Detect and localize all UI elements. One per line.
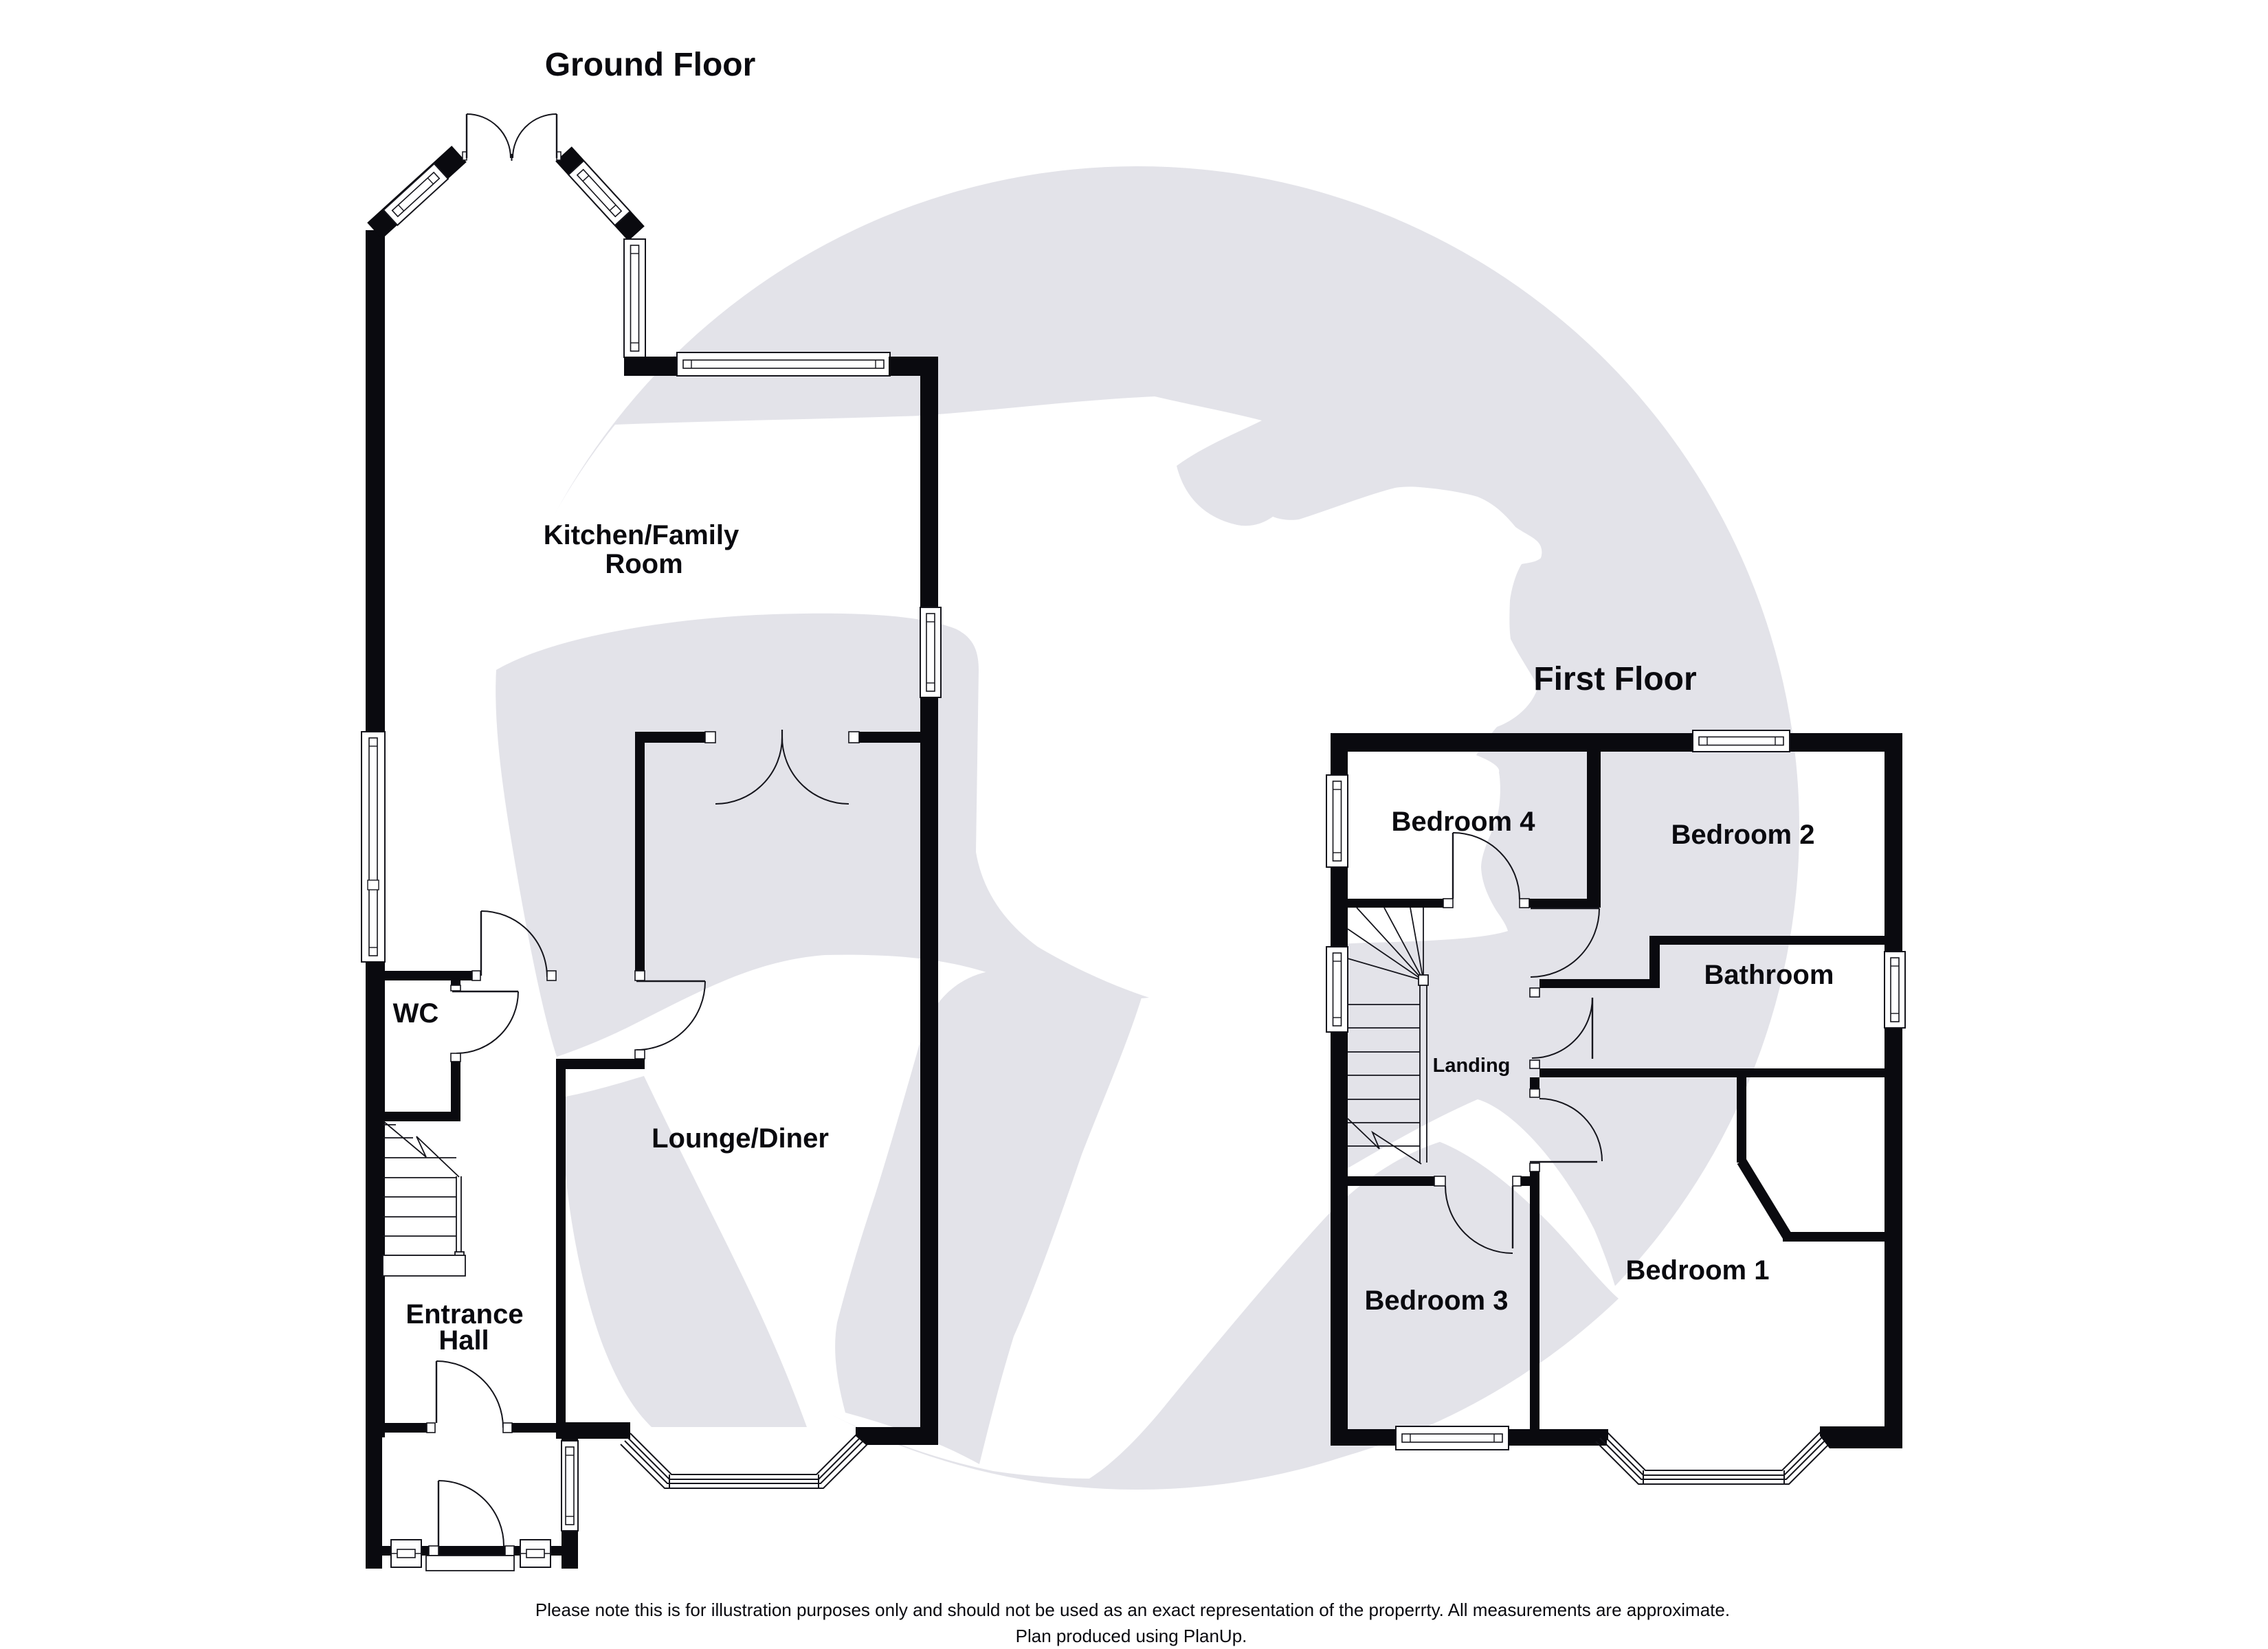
svg-text:Kitchen/Family: Kitchen/Family [544, 520, 740, 550]
svg-text:Bedroom 1: Bedroom 1 [1626, 1255, 1770, 1286]
svg-text:Plan produced using PlanUp.: Plan produced using PlanUp. [1016, 1626, 1247, 1646]
svg-text:Bedroom 2: Bedroom 2 [1671, 820, 1815, 850]
svg-text:Hall: Hall [438, 1325, 489, 1356]
svg-text:Ground Floor: Ground Floor [545, 47, 756, 83]
svg-text:First Floor: First Floor [1533, 661, 1696, 697]
svg-text:Bathroom: Bathroom [1704, 960, 1834, 990]
svg-text:Lounge/Diner: Lounge/Diner [652, 1123, 829, 1154]
svg-text:Bedroom 3: Bedroom 3 [1365, 1286, 1509, 1316]
svg-text:Please note this is for illust: Please note this is for illustration pur… [535, 1600, 1730, 1620]
svg-text:Bedroom 4: Bedroom 4 [1392, 807, 1536, 837]
svg-text:Room: Room [605, 549, 682, 579]
svg-text:Landing: Landing [1433, 1055, 1511, 1077]
svg-text:WC: WC [393, 998, 439, 1029]
